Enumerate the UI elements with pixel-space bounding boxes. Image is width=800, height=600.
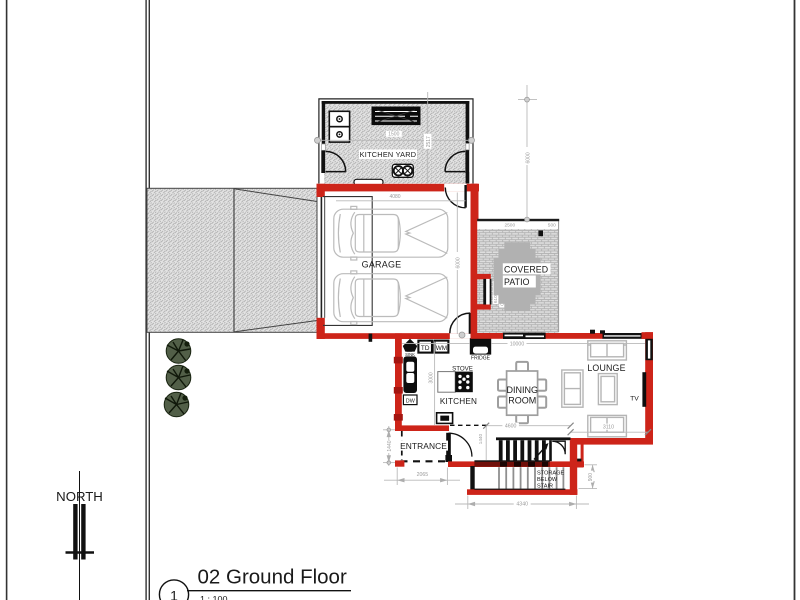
svg-text:ENTRANCE: ENTRANCE xyxy=(400,441,447,451)
svg-text:4340: 4340 xyxy=(516,502,528,508)
svg-text:2065: 2065 xyxy=(417,472,429,478)
svg-text:900: 900 xyxy=(588,473,594,482)
svg-text:TV: TV xyxy=(630,396,639,403)
svg-text:4080: 4080 xyxy=(389,194,400,200)
svg-text:TD: TD xyxy=(421,345,430,352)
svg-text:DW: DW xyxy=(406,398,416,404)
svg-text:2517: 2517 xyxy=(426,136,432,147)
svg-text:KITCHEN YARD: KITCHEN YARD xyxy=(360,150,417,159)
svg-text:KITCHEN: KITCHEN xyxy=(440,397,477,406)
svg-text:2500: 2500 xyxy=(504,223,515,229)
svg-text:COVERED: COVERED xyxy=(504,264,548,274)
svg-text:1 : 100: 1 : 100 xyxy=(200,595,228,600)
svg-text:3000: 3000 xyxy=(428,372,434,383)
svg-text:FRIDGE: FRIDGE xyxy=(471,355,491,361)
svg-text:BELOW: BELOW xyxy=(537,477,558,483)
svg-text:02 Ground Floor: 02 Ground Floor xyxy=(198,566,347,589)
svg-text:1500: 1500 xyxy=(388,132,399,138)
svg-text:6000: 6000 xyxy=(456,257,462,268)
svg-text:1440: 1440 xyxy=(478,434,483,445)
svg-text:LOUNGE: LOUNGE xyxy=(587,363,625,373)
svg-text:6000: 6000 xyxy=(525,152,531,163)
svg-text:STORAGE: STORAGE xyxy=(537,471,565,477)
svg-text:SINK: SINK xyxy=(405,352,415,357)
svg-text:WM: WM xyxy=(436,345,447,352)
svg-text:4600: 4600 xyxy=(505,424,517,430)
svg-text:3110: 3110 xyxy=(603,425,614,431)
svg-text:DINING: DINING xyxy=(507,385,539,395)
svg-text:PATIO: PATIO xyxy=(504,277,530,287)
svg-text:10000: 10000 xyxy=(510,341,525,347)
svg-text:1440: 1440 xyxy=(387,440,393,451)
svg-text:1: 1 xyxy=(170,588,178,600)
svg-text:500: 500 xyxy=(548,223,556,229)
svg-text:ROOM: ROOM xyxy=(508,396,536,406)
svg-text:NORTH: NORTH xyxy=(56,489,103,504)
svg-text:GARAGE: GARAGE xyxy=(362,259,402,269)
